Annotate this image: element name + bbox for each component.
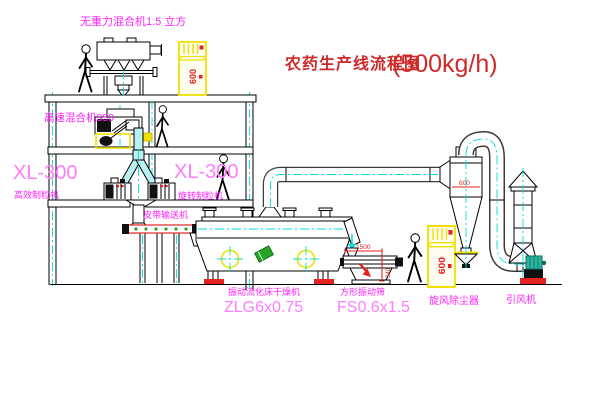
person-floor2: [157, 106, 168, 147]
label-top-mixer: 无重力混合机1.5 立方: [80, 14, 186, 28]
process-flow-drawing: 600: [0, 0, 600, 403]
label-dryer-name: 振动流化床干燥机: [228, 286, 300, 297]
dim-screen-length: 1500: [356, 244, 371, 251]
dim-screen-height: 340: [386, 267, 392, 278]
label-granulator-mid-model: XL-300: [174, 161, 239, 183]
vibrating-screen-machine: 1500 340: [340, 234, 403, 284]
label-fan: 引风机: [506, 293, 536, 306]
label-high-speed-mixer: 高速混合机350: [44, 111, 114, 124]
dim-cyclone: 600: [459, 180, 470, 187]
cad-canvas: 600: [0, 0, 600, 403]
diagram-title-capacity: (500kg/h): [392, 50, 498, 78]
label-screen-model: FS0.6x1.5: [337, 299, 410, 316]
label-dryer-model: ZLG6x0.75: [224, 299, 303, 316]
fluid-bed-dryer-machine: [196, 207, 360, 284]
label-screen-name: 方形振动筛: [340, 286, 385, 297]
gravity-free-mixer: [86, 38, 162, 95]
belt-conveyor-machine: [122, 224, 203, 283]
label-granulator-mid-name: 旋转制粒机: [178, 190, 223, 201]
dryer-exhaust-duct: [271, 159, 453, 207]
label-granulator-left-model: XL-300: [13, 162, 78, 184]
control-cabinet-top: [179, 42, 206, 95]
label-cyclone: 旋风除尘器: [429, 294, 479, 307]
control-cabinet-right: [428, 226, 455, 287]
label-granulator-left-name: 高效制粒机: [14, 189, 59, 200]
label-belt-conveyor: 皮带输送机: [143, 209, 188, 220]
person-ground: [408, 234, 421, 282]
